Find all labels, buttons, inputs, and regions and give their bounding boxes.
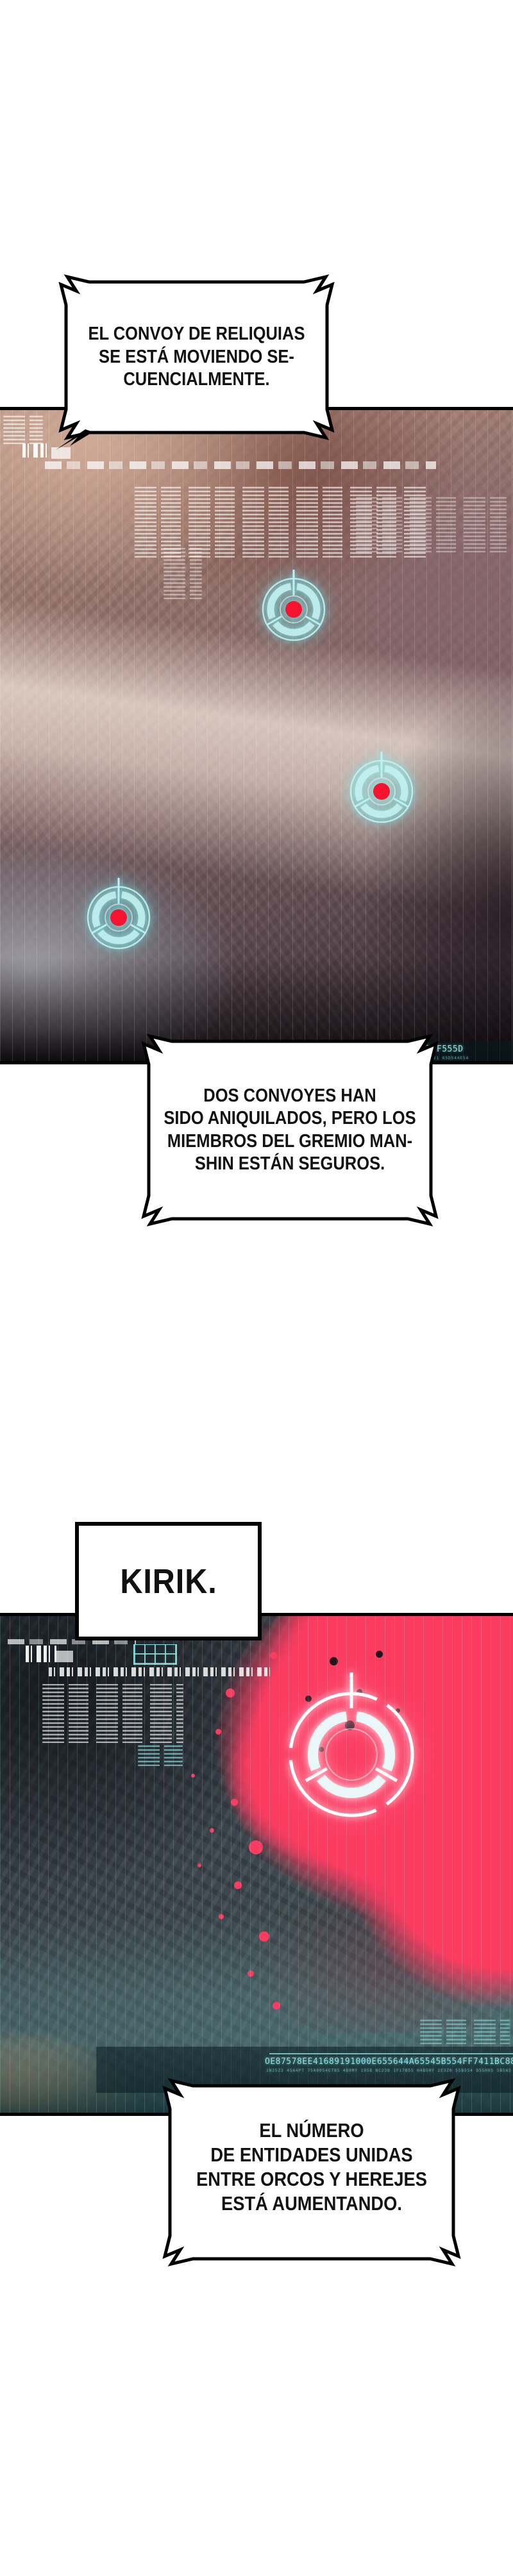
hud-text-noise [42,1684,183,1743]
hud-dash-strip [45,461,436,469]
bubble-text: DOS CONVOYES HAN SIDO ANIQUILADOS, PERO … [168,1041,412,1219]
reticle-center-dot [373,783,390,800]
speech-bubble: EL NÚMERO DE ENTIDADES UNIDAS ENTRE ORCO… [164,2079,460,2265]
speech-bubble: DOS CONVOYES HAN SIDO ANIQUILADOS, PERO … [142,1035,437,1225]
bubble-line: EL CONVOY DE RELIQUIAS [88,323,305,345]
bubble-line: SE ESTÁ MOVIENDO SE- [99,346,294,368]
target-reticle-icon [74,873,164,966]
bubble-line: SHIN ESTÁN SEGUROS. [195,1153,385,1175]
bubble-line: CUENCIALMENTE. [123,368,269,391]
hud-barcode [22,443,51,458]
hud-block [51,447,71,459]
hud-text-noise [3,413,43,444]
hud-data-string-secondary: 1N25Z3 45A4PT 75A0054E7B5 4B9MY 1958 NC2… [266,2068,513,2073]
bubble-line: ESTÁ AUMENTANDO. [221,2192,402,2216]
bubble-line: DOS CONVOYES HAN [203,1085,376,1107]
bubble-text: EL CONVOY DE RELIQUIAS SE ESTÁ MOVIENDO … [84,282,309,433]
kirik-text: KIRIK. [120,1562,217,1601]
kirik-caption-box: KIRIK. [75,1522,262,1640]
hud-divider-line [269,2053,513,2054]
hud-barcode [49,1667,270,1676]
hud-keypad-grid [133,1644,177,1665]
bubble-line: SIDO ANIQUILADOS, PERO LOS [164,1107,416,1130]
alert-reticle-icon [268,1671,435,1841]
panel-satellite-map-1: 4A12554CCC56555F555D UAGGODB5554 555B7J2… [0,407,513,1064]
target-reticle-icon [337,747,426,839]
reticle-center-dot [110,909,127,926]
bubble-line: ENTRE ORCOS Y HEREJES [196,2167,427,2192]
hud-barcode [26,1646,56,1662]
target-reticle-icon [249,565,339,657]
reticle-center-dot [285,601,302,618]
hud-block [55,1651,73,1662]
hud-text-noise [138,1744,183,1766]
panel-satellite-map-2: OE87578EE41689191000E655644A65545B554FF7… [0,1613,513,2116]
hud-text-noise [420,2019,510,2044]
hud-text-noise [356,495,507,552]
comic-page: 4A12554CCC56555F555D UAGGODB5554 555B7J2… [0,0,513,2576]
hud-data-string: OE87578EE41689191000E655644A65545B554FF7… [265,2057,513,2067]
bubble-line: DE ENTIDADES UNIDAS [210,2143,412,2167]
bubble-text: EL NÚMERO DE ENTIDADES UNIDAS ENTRE ORCO… [189,2086,434,2249]
hud-text-noise [164,548,202,599]
bubble-line: EL NÚMERO [259,2118,364,2143]
bubble-line: MIEMBROS DEL GREMIO MAN- [167,1130,412,1153]
speech-bubble: EL CONVOY DE RELIQUIAS SE ESTÁ MOVIENDO … [60,276,333,439]
